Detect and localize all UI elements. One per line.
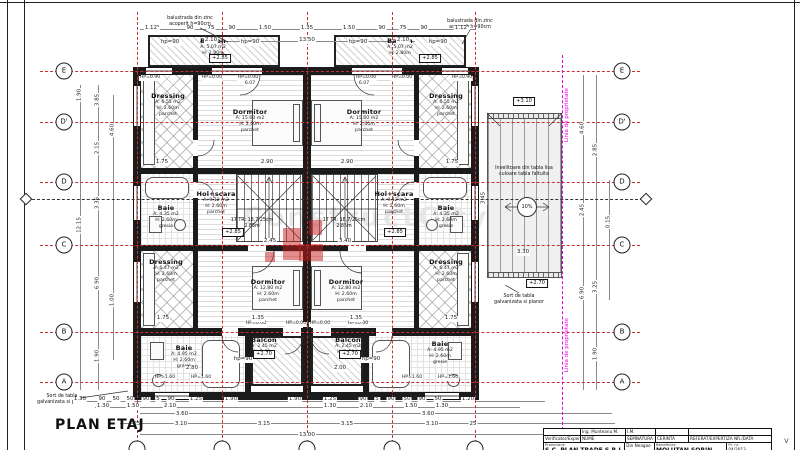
tb-cell: I.M.: [626, 429, 656, 435]
title-block: Ing. Munteanu M. I.M. Verificator/Expert…: [543, 428, 772, 450]
tb-cell: [689, 429, 771, 435]
tb-cell: Verificator/Expert: [544, 436, 581, 442]
page-title: PLAN ETAJ: [55, 417, 145, 433]
watermark-logo-block: [309, 220, 322, 235]
tb-cell: Ing. Munteanu M.: [581, 429, 626, 435]
tb-cell: REFERAT/EXPERTIZA NR./DATA: [689, 436, 771, 442]
watermark-logo-block: [299, 244, 323, 261]
tb-cell: [656, 429, 689, 435]
tb-cell-pr: Pr. nr. 04/2013: [727, 443, 771, 450]
drawing-sheet: ConstructCity EED'D'DDCCBBAABalconA: 5.0…: [0, 0, 800, 450]
roof-slope-marker: 10%: [517, 197, 537, 217]
tb-cell: [544, 429, 581, 435]
section-line: [22, 199, 648, 200]
property-line: [562, 55, 563, 450]
title-block-row1: Ing. Munteanu M. I.M.: [544, 429, 771, 436]
plan-linework: [0, 0, 800, 450]
tb-cell-mid: Din Neagoe: [625, 443, 655, 450]
tb-cell: CERINTA: [656, 436, 689, 442]
tb-cell-proiectant: Proiectant: S.C. PLAN TRADE S.R.L.: [544, 443, 625, 450]
watermark-logo-block: [265, 252, 275, 262]
title-block-row3: Proiectant: S.C. PLAN TRADE S.R.L. Din N…: [544, 443, 771, 450]
fold-mark: v: [784, 436, 789, 445]
tb-cell: NUME: [581, 436, 626, 442]
tb-cell: SEMNATURA: [626, 436, 656, 442]
tb-cell-beneficiar: Beneficiar: MOLUTAN SORIN: [655, 443, 727, 450]
title-block-row2: Verificator/Expert NUME SEMNATURA CERINT…: [544, 436, 771, 443]
